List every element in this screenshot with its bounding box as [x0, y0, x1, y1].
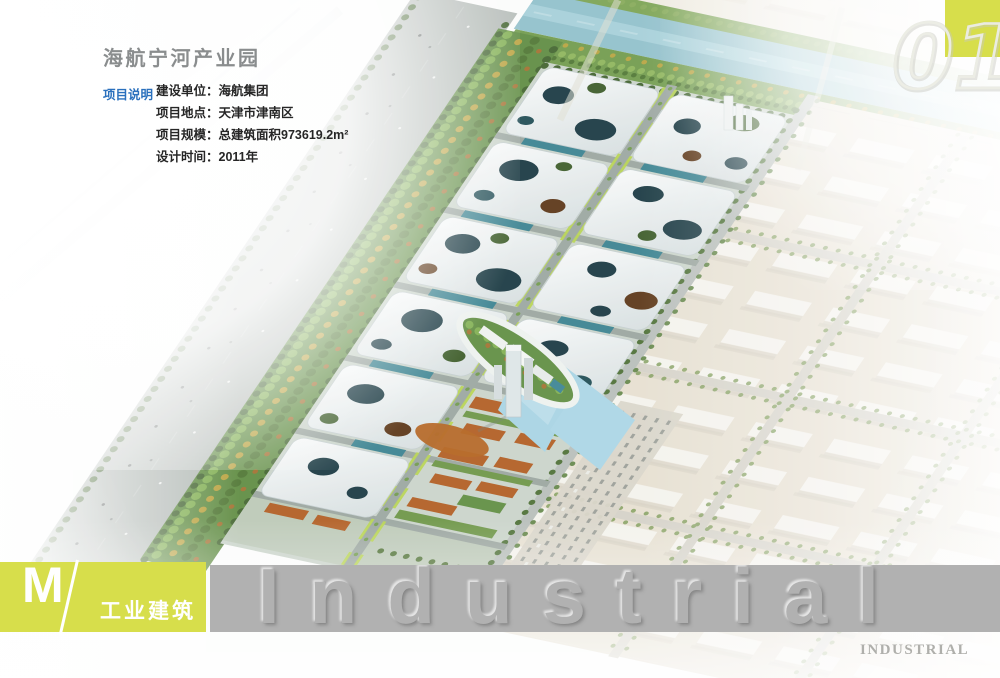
detail-label: 项目规模：	[156, 128, 219, 142]
project-details: 建设单位：海航集团 项目地点：天津市津南区 项目规模：总建筑面积973619.2…	[156, 84, 348, 172]
detail-row: 项目地点：天津市津南区	[156, 106, 348, 128]
watermark-embossed: Industrial	[258, 565, 909, 632]
section-label: 项目说明	[103, 84, 153, 103]
detail-label: 项目地点：	[156, 106, 219, 120]
detail-label: 设计时间：	[156, 150, 219, 164]
detail-row: 项目规模：总建筑面积973619.2m²	[156, 128, 348, 150]
detail-label: 建设单位：	[156, 84, 219, 98]
category-banner-gray: Industrial	[210, 565, 1000, 632]
category-label: 工业建筑	[100, 595, 196, 625]
detail-value: 海航集团	[219, 84, 269, 98]
portfolio-page: 01 01 海航宁河产业园 项目说明 建设单位：海航集团 项目地点：天津市津南区…	[0, 0, 1000, 678]
watermark-caps: INDUSTRIAL	[860, 642, 969, 659]
detail-row: 建设单位：海航集团	[156, 84, 348, 106]
category-banner-yellow: M 工业建筑	[0, 562, 206, 632]
index-letter: M	[22, 556, 64, 614]
page-number: 01	[892, 6, 1000, 109]
page-title: 海航宁河产业园	[103, 42, 261, 71]
detail-row: 设计时间：2011年	[156, 150, 348, 172]
detail-value: 2011年	[219, 150, 259, 164]
page-number-block: 01 01	[892, 0, 1000, 110]
detail-value: 总建筑面积973619.2m²	[219, 128, 349, 142]
detail-value: 天津市津南区	[219, 106, 294, 120]
